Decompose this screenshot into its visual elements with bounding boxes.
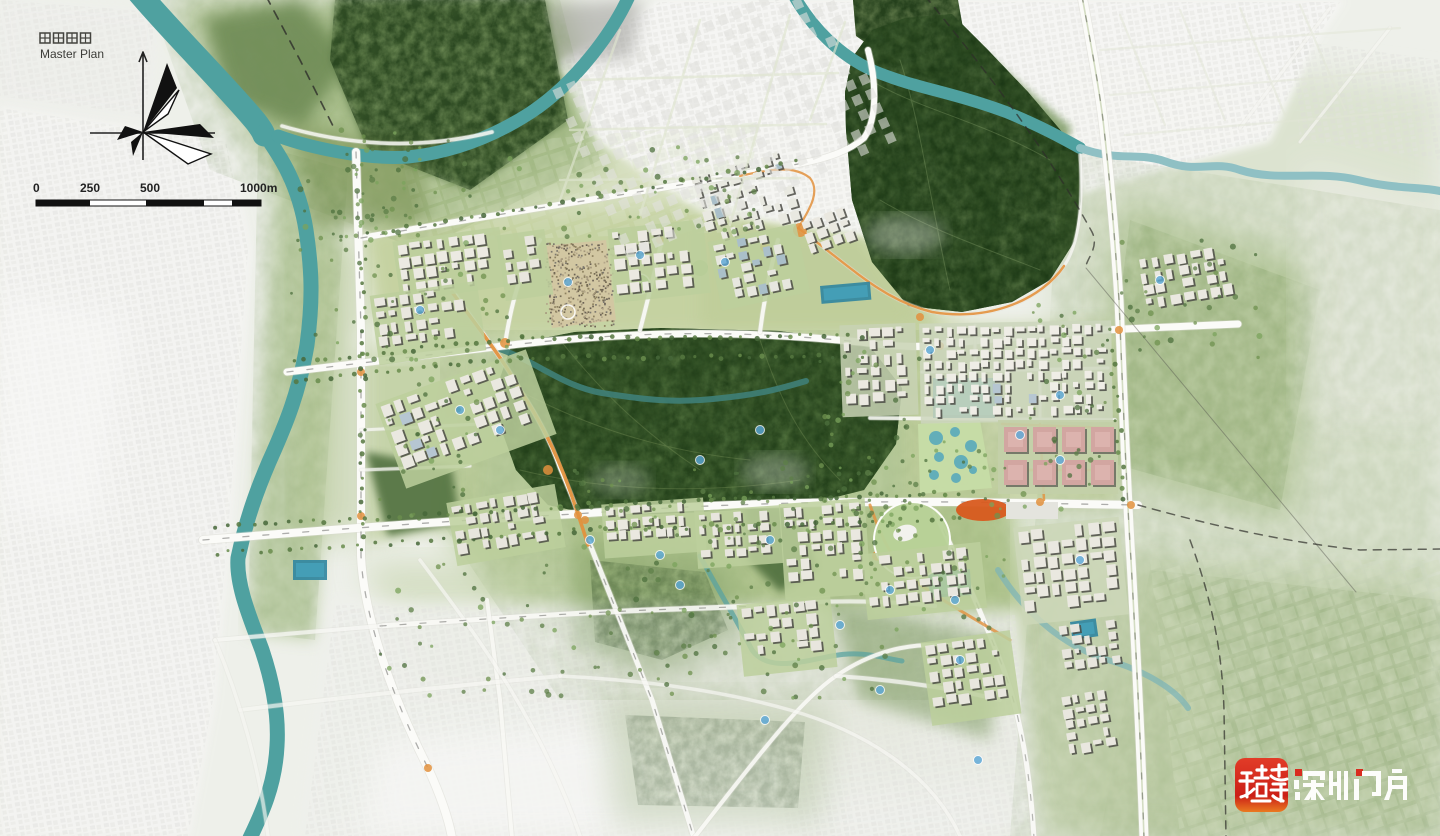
- svg-text:250: 250: [80, 181, 100, 195]
- svg-text:1000m: 1000m: [240, 181, 277, 195]
- svg-text:Master Plan: Master Plan: [40, 47, 104, 61]
- svg-text:0: 0: [33, 181, 40, 195]
- svg-text:500: 500: [140, 181, 160, 195]
